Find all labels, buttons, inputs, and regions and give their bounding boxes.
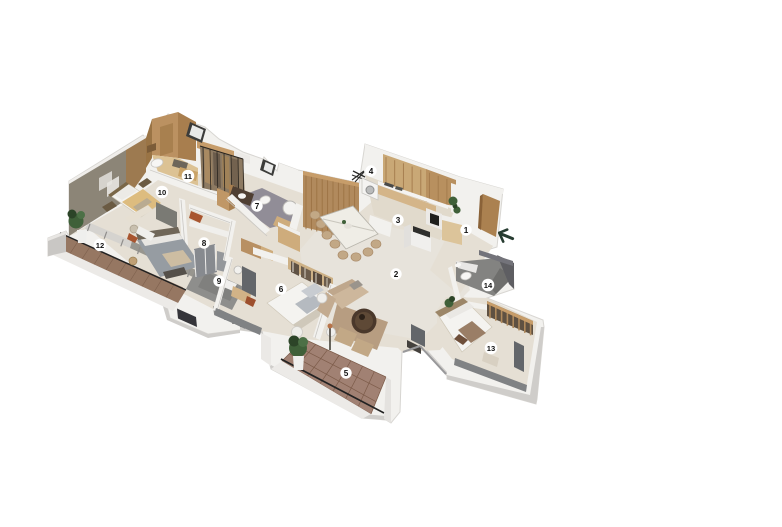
svg-text:4: 4 bbox=[369, 167, 374, 176]
svg-text:14: 14 bbox=[484, 281, 493, 290]
svg-text:13: 13 bbox=[487, 344, 495, 353]
svg-text:5: 5 bbox=[344, 369, 349, 378]
svg-text:7: 7 bbox=[255, 202, 260, 211]
svg-text:3: 3 bbox=[396, 216, 401, 225]
svg-text:11: 11 bbox=[184, 172, 193, 181]
svg-text:2: 2 bbox=[394, 270, 399, 279]
svg-text:6: 6 bbox=[279, 285, 284, 294]
svg-text:8: 8 bbox=[202, 239, 207, 248]
svg-text:9: 9 bbox=[217, 277, 222, 286]
svg-text:1: 1 bbox=[464, 226, 469, 235]
svg-text:12: 12 bbox=[96, 241, 104, 250]
svg-text:10: 10 bbox=[158, 188, 166, 197]
